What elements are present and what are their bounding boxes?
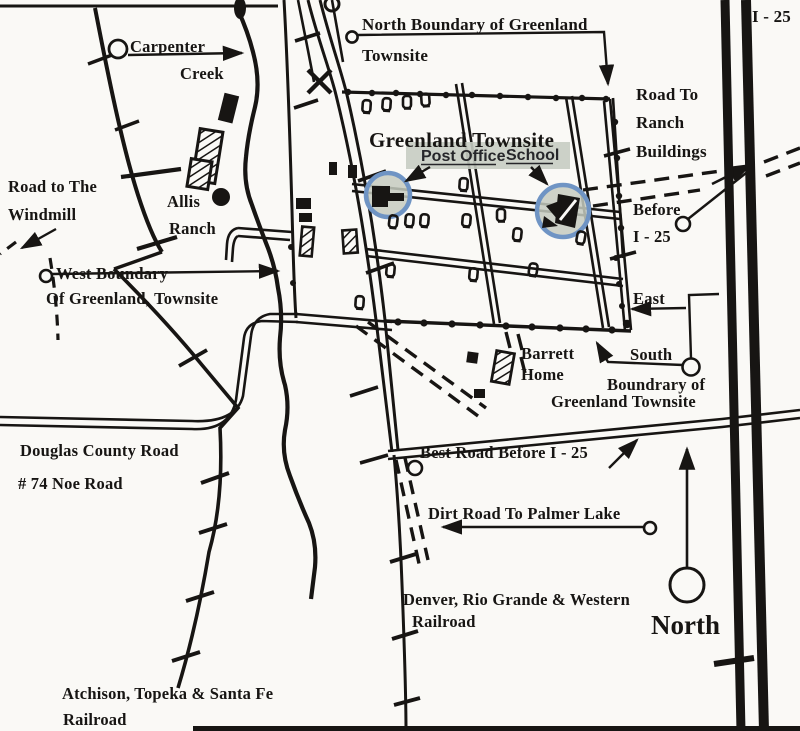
label-west-boundary-1: West Boundary [56, 264, 169, 283]
label-barrett-home: Home [521, 365, 564, 384]
label-atsf-1: Atchison, Topeka & Santa Fe [62, 684, 273, 703]
label-road-ranch-3: Buildings [636, 142, 707, 161]
label-west-boundary-2: Of Greenland, Townsite [46, 289, 218, 308]
label-douglas-road: Douglas County Road [20, 441, 179, 460]
label-barrett: Barrett [521, 344, 575, 363]
label-noe-road: # 74 Noe Road [18, 474, 123, 493]
label-dirt-road: Dirt Road To Palmer Lake [428, 504, 620, 523]
label-allis: Allis [167, 192, 200, 211]
label-i25-top: I - 25 [752, 7, 791, 26]
label-post-office: Post Office [421, 148, 506, 165]
label-drgw-1: Denver, Rio Grande & Western [403, 590, 630, 609]
label-south: South [630, 345, 672, 364]
label-compass-north: North [651, 610, 720, 640]
label-allis-ranch: Ranch [169, 219, 216, 238]
label-east: East [633, 289, 665, 308]
label-atsf-2: Railroad [63, 710, 127, 729]
label-road-ranch-1: Road To [636, 85, 698, 104]
label-windmill-2: Windmill [8, 205, 76, 224]
label-carpenter: Carpenter [130, 37, 205, 56]
label-south-boundary-2: Greenland Townsite [551, 392, 696, 411]
label-north-boundary-2: Townsite [362, 46, 428, 65]
bottom-edge-bar [193, 726, 800, 731]
map-canvas: Carpenter Creek North Boundary of Greenl… [0, 0, 800, 731]
label-before-i25: I - 25 [633, 227, 671, 246]
greenland-townsite-map: Carpenter Creek North Boundary of Greenl… [0, 0, 800, 731]
label-carpenter-creek: Creek [180, 64, 224, 83]
label-drgw-2: Railroad [412, 612, 476, 631]
label-north-boundary-1: North Boundary of Greenland [362, 15, 588, 34]
label-windmill-1: Road to The [8, 177, 97, 196]
label-best-road: Best Road Before I - 25 [420, 443, 588, 462]
label-before: Before [633, 200, 681, 219]
label-school: School [506, 147, 559, 164]
label-road-ranch-2: Ranch [636, 113, 685, 132]
